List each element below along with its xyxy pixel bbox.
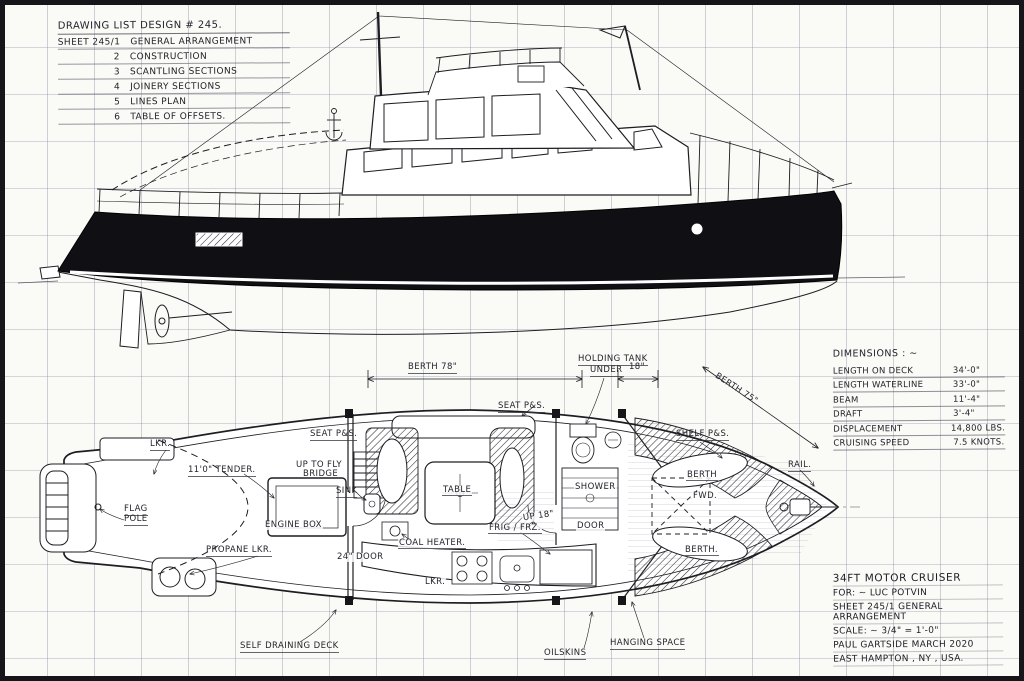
- deck-plan-view: [40, 367, 860, 648]
- door-24-label: 24" DOOR: [336, 553, 384, 562]
- dimension-row: CRUISING SPEED 7.5 KNOTS.: [833, 435, 1005, 451]
- prop-shaft: [169, 312, 232, 318]
- toilet: [570, 424, 596, 463]
- berth-port-label: BERTH.: [684, 546, 719, 556]
- drawing-list: DRAWING LIST DESIGN # 245. SHEET 245/1 G…: [58, 19, 291, 125]
- propeller: [155, 305, 169, 337]
- title-block: 34FT MOTOR CRUISER FOR: ~ LUC POTVIN SHE…: [833, 569, 1004, 666]
- dim-label-18: 18": [629, 363, 645, 372]
- burgee: [600, 26, 625, 38]
- basin: [605, 432, 621, 448]
- bar-sink: [364, 494, 380, 514]
- drawing-sheet: DRAWING LIST DESIGN # 245. SHEET 245/1 G…: [0, 0, 1024, 681]
- sheet-line: SHEET 245/1 GENERAL ARRANGEMENT: [833, 599, 1003, 624]
- drawing-list-item: 2 CONSTRUCTION: [58, 48, 290, 65]
- dimension-row: DISPLACEMENT 14,800 LBS.: [833, 420, 1005, 436]
- seat-ps-fwd-label: SEAT P&S.: [498, 402, 545, 413]
- porthole: [692, 224, 703, 235]
- transom-platform: [40, 464, 96, 552]
- rail-label: RAIL.: [788, 461, 811, 472]
- drawing-list-item: 5 LINES PLAN: [58, 93, 290, 110]
- fwd-hatch-label: FWD.: [692, 492, 718, 501]
- stove: [452, 552, 492, 584]
- propane-locker-label: PROPANE LKR.: [206, 546, 272, 557]
- fridge-freezer: [540, 550, 592, 584]
- flag-pole-label-2: POLE: [124, 515, 148, 526]
- client-line: FOR: ~ LUC POTVIN: [833, 585, 1003, 600]
- hull-topsides: [58, 191, 842, 290]
- locker-galley-label: LKR.: [424, 578, 446, 587]
- scale-line: SCALE: ~ 3/4" = 1'-0": [833, 623, 1003, 638]
- tender-on-deck: [112, 130, 344, 190]
- table-label: TABLE: [442, 486, 472, 496]
- anchor-davit: [326, 109, 342, 141]
- shower-label: SHOWER: [574, 483, 617, 492]
- boat-title: 34FT MOTOR CRUISER: [833, 569, 1003, 586]
- dimension-row: LENGTH ON DECK 34'-0": [833, 362, 1005, 378]
- drawing-list-item: 4 JOINERY SECTIONS: [58, 78, 290, 95]
- dimension-row: DRAFT 3'-4": [833, 406, 1005, 422]
- author-date-line: PAUL GARTSIDE MARCH 2020: [833, 637, 1003, 652]
- berth-stbd-label: BERTH: [686, 471, 718, 481]
- drawing-list-item: SHEET 245/1 GENERAL ARRANGEMENT: [58, 33, 290, 50]
- sink-label: SINK: [336, 487, 357, 498]
- door-label: DOOR: [576, 522, 605, 531]
- shelf-ps-label: SHELF P&S.: [676, 430, 729, 441]
- place-line: EAST HAMPTON , NY , USA.: [833, 651, 1003, 666]
- dim-label-berth-78: BERTH 78": [408, 363, 457, 374]
- stay-fwd: [379, 16, 627, 30]
- hanging-space-label: HANGING SPACE: [610, 639, 685, 650]
- seat-ps-aft-label: SEAT P&S.: [310, 430, 357, 441]
- drawing-list-item: 6 TABLE OF OFFSETS.: [58, 108, 290, 125]
- self-draining-deck-label: SELF DRAINING DECK: [240, 642, 339, 653]
- skeg: [141, 292, 230, 344]
- swim-step: [40, 266, 60, 279]
- oilskins-label: OILSKINS: [544, 649, 586, 660]
- rudder: [120, 290, 141, 348]
- up-to-fly-bridge-label-2: BRIDGE: [303, 470, 338, 479]
- foremast: [600, 26, 640, 90]
- pilothouse: [370, 86, 634, 149]
- locker-aft-label: LKR.: [150, 440, 170, 451]
- dimension-row: LENGTH WATERLINE 33'-0": [833, 377, 1005, 393]
- dimension-row: BEAM 11'-4": [833, 391, 1005, 407]
- frig-frz-label: FRIG / FRZ.: [488, 524, 542, 534]
- drawing-list-item: 3 SCANTLING SECTIONS: [58, 63, 290, 80]
- holding-tank-label-2: UNDER: [590, 366, 622, 377]
- anchor-roller: [832, 183, 852, 188]
- coal-heater-label: COAL HEATER.: [398, 539, 466, 549]
- engine-box-label: ENGINE BOX: [264, 521, 323, 530]
- name-board: [196, 233, 242, 246]
- dimensions-block: DIMENSIONS : ~ LENGTH ON DECK 34'-0" LEN…: [833, 347, 1006, 450]
- aft-rail: [97, 189, 344, 218]
- tender-label: 11'0" TENDER.: [188, 466, 256, 477]
- dimensions-title: DIMENSIONS : ~: [833, 347, 1005, 363]
